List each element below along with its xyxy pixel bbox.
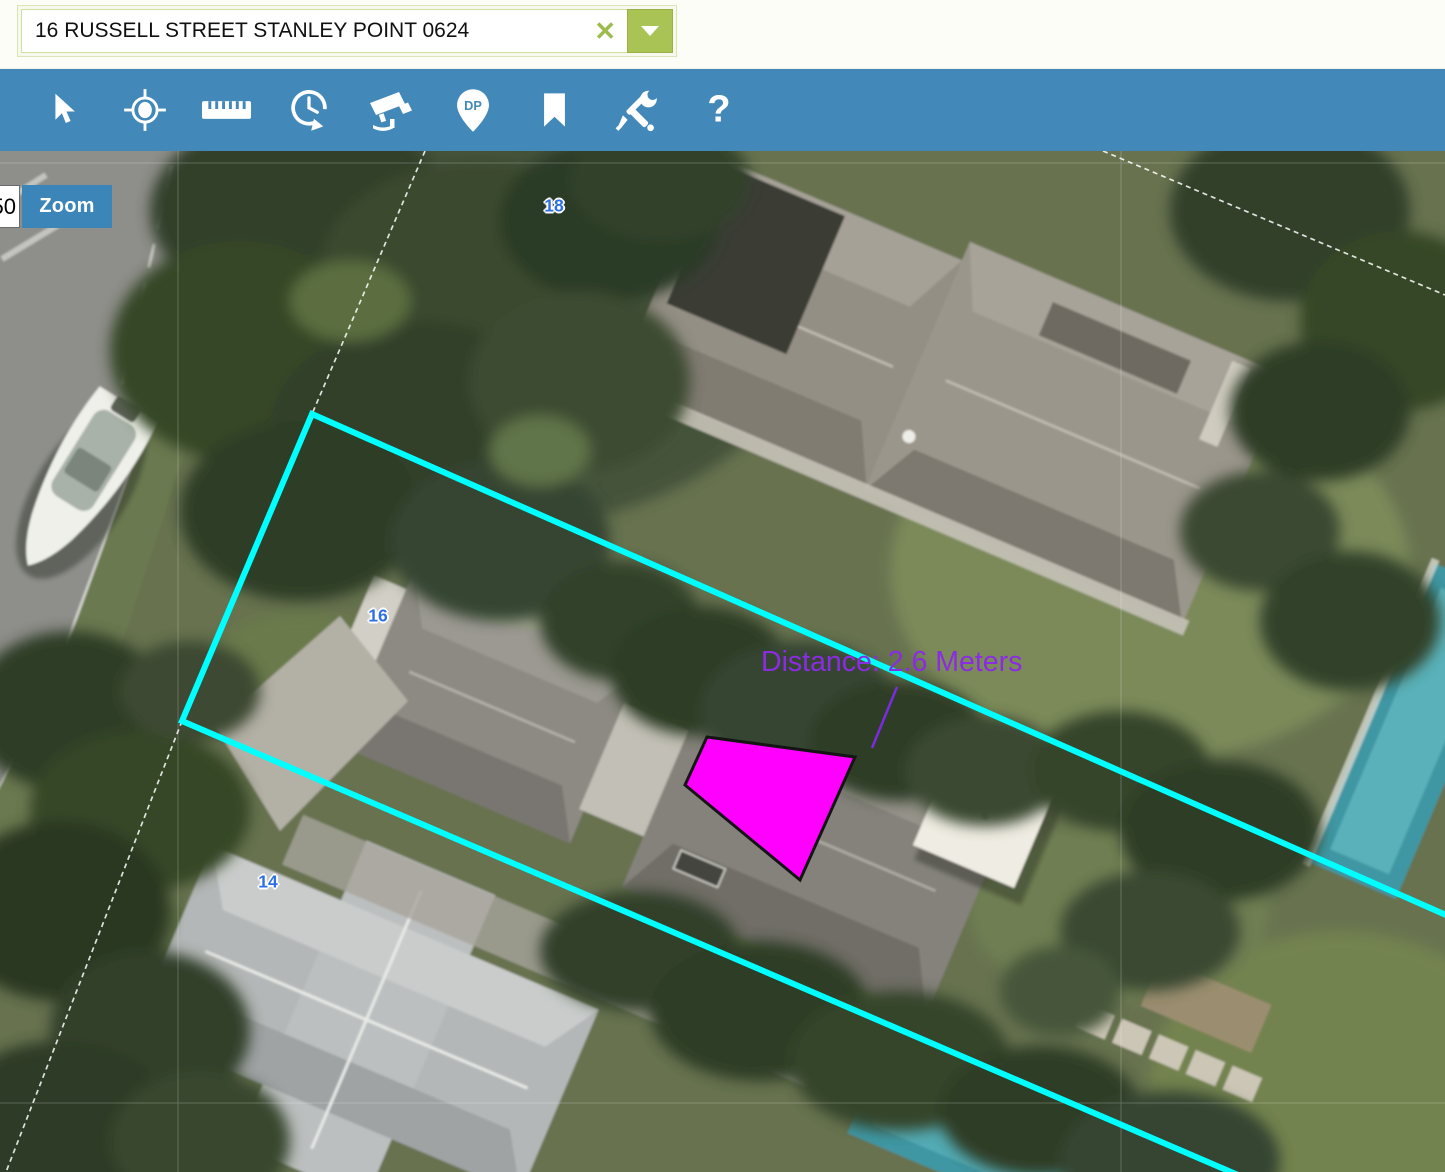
locate-tool-button[interactable] [119, 84, 170, 136]
parcel-label-18: 18 [544, 196, 563, 217]
map-canvas[interactable] [0, 151, 1445, 1172]
ruler-icon [201, 97, 252, 123]
search-input[interactable] [21, 9, 627, 53]
dp-pin-icon: DP [456, 88, 490, 133]
help-label: ? [707, 90, 730, 130]
pointer-tool-button[interactable] [37, 84, 88, 136]
security-camera-icon [366, 89, 416, 131]
map-toolbar: DP ? [0, 69, 1445, 151]
help-tool-button[interactable]: ? [693, 84, 744, 136]
history-tool-button[interactable] [283, 84, 334, 136]
parcel-label-16: 16 [368, 606, 387, 627]
streetview-tool-button[interactable] [365, 84, 416, 136]
search-dropdown-button[interactable] [627, 9, 673, 53]
address-search-widget: ✕ [17, 5, 677, 57]
distance-measurement-label: Distance: 2.6 Meters [761, 646, 1022, 679]
map-viewport[interactable]: 50 Zoom 18 16 14 Distance: 2.6 Meters [0, 151, 1445, 1172]
aerial-imagery [0, 151, 1445, 1172]
bookmark-icon [542, 91, 567, 129]
top-bar: ✕ [0, 0, 1445, 69]
parcel-label-14: 14 [258, 872, 277, 893]
measure-tool-button[interactable] [201, 84, 252, 136]
tools-icon [613, 86, 661, 134]
zoom-button[interactable]: Zoom [22, 185, 112, 228]
clear-search-icon[interactable]: ✕ [594, 18, 616, 44]
history-clock-icon [287, 87, 331, 133]
dp-marker-tool-button[interactable]: DP [447, 84, 498, 136]
chevron-down-icon [641, 26, 659, 36]
locate-target-icon [123, 88, 167, 132]
settings-tools-button[interactable] [611, 84, 662, 136]
dp-pin-label: DP [464, 97, 482, 112]
help-icon: ? [706, 90, 732, 130]
bookmark-tool-button[interactable] [529, 84, 580, 136]
scale-input[interactable]: 50 [0, 185, 20, 228]
pointer-icon [50, 92, 76, 128]
